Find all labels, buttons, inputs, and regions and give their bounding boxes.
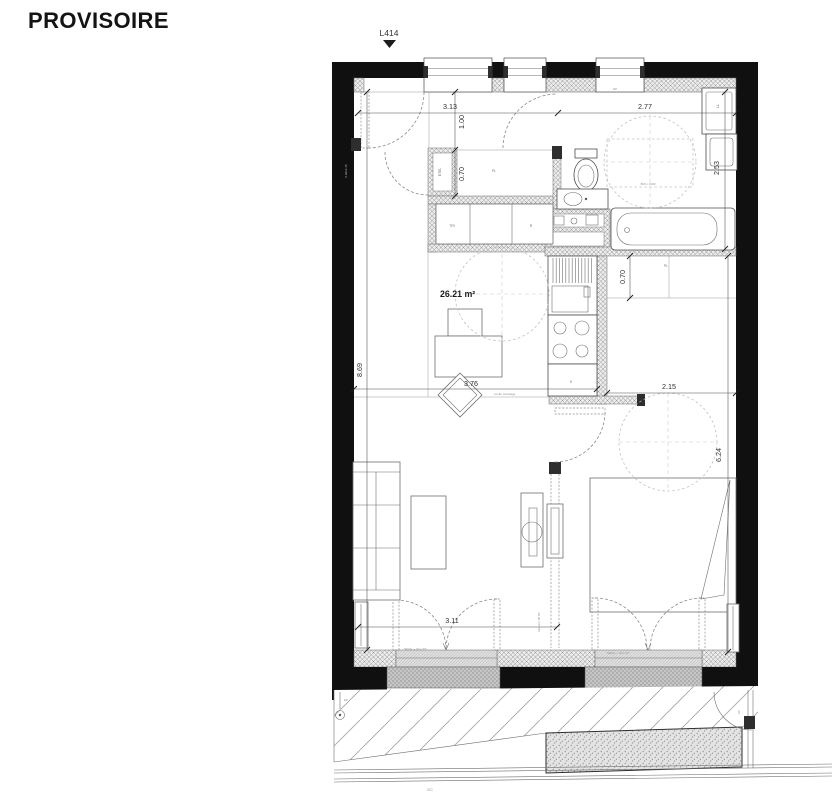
sliding-door-panel xyxy=(547,504,563,558)
wardrobe-tri-label: TRI xyxy=(449,224,455,228)
dim-dressing-depth: 0.70 xyxy=(618,270,627,284)
np-label: NP xyxy=(613,87,617,91)
dim-bedroom-length: 6.24 xyxy=(714,448,723,462)
dim-bedroom-width: 2.15 xyxy=(662,382,676,391)
placard-dressing-label: PL xyxy=(664,264,668,268)
placard-entry-label: PL xyxy=(492,169,496,173)
seuil-living-label: SEUIL + 3cm ST xyxy=(404,647,426,651)
dim-living-length: 8.69 xyxy=(355,363,364,377)
stove xyxy=(548,315,597,364)
sofa xyxy=(353,462,400,600)
area-label: 26.21 m² xyxy=(440,289,475,299)
limite-carrelage-label: Limite carrelage xyxy=(494,392,516,396)
threshold-bedroom xyxy=(585,667,702,688)
access-zone-label: 800 x 1300 xyxy=(641,182,656,186)
door-leaf-size-label: 0.90x2.15 xyxy=(344,164,348,178)
nf-label: Intérieur 80 NF xyxy=(537,612,541,632)
dim-closet-depth: 0.70 xyxy=(457,167,466,181)
washer-label: LL xyxy=(716,104,720,108)
floor-plan-page: PROVISOIRE L414 xyxy=(0,0,832,800)
washing-machine xyxy=(702,88,736,134)
dim-bath-depth: 2.53 xyxy=(712,161,721,175)
seuil-bedroom-label: SEUIL + 3cm ST xyxy=(607,651,629,655)
dim-bath-width: 2.77 xyxy=(638,102,652,111)
sideboard xyxy=(521,493,543,567)
facade-windows-top xyxy=(424,58,644,92)
towel-radiator xyxy=(706,134,737,170)
bed xyxy=(590,478,736,612)
ep-right-label: EP xyxy=(737,710,741,714)
floor-plan-drawing: PROVISOIRE L414 xyxy=(0,0,832,800)
window-bathroom xyxy=(596,58,644,92)
kitchen-sink-unit xyxy=(548,256,597,315)
dim-corridor-depth: 1.00 xyxy=(457,115,466,129)
toilet xyxy=(574,149,598,191)
bathtub xyxy=(611,208,735,250)
bedroom-radiator xyxy=(727,604,739,652)
threshold-living xyxy=(387,667,500,688)
kitchen-cabinet xyxy=(548,364,597,396)
washbasin xyxy=(557,189,608,209)
dim-living-width: 3.76 xyxy=(464,379,478,388)
dim-window-width: 3.11 xyxy=(445,616,458,625)
window-entry xyxy=(424,58,492,92)
coffee-table xyxy=(411,496,446,569)
gc-label: GC xyxy=(427,787,433,792)
kitchen xyxy=(548,256,597,396)
lot-label: L414 xyxy=(380,28,399,38)
living-radiator xyxy=(355,602,368,648)
window-hall xyxy=(504,58,546,92)
technical-duct xyxy=(545,209,610,253)
watermark-text: PROVISOIRE xyxy=(28,8,169,33)
ep-left-label: EP xyxy=(344,698,348,702)
etel-label: ETEL xyxy=(438,168,442,177)
